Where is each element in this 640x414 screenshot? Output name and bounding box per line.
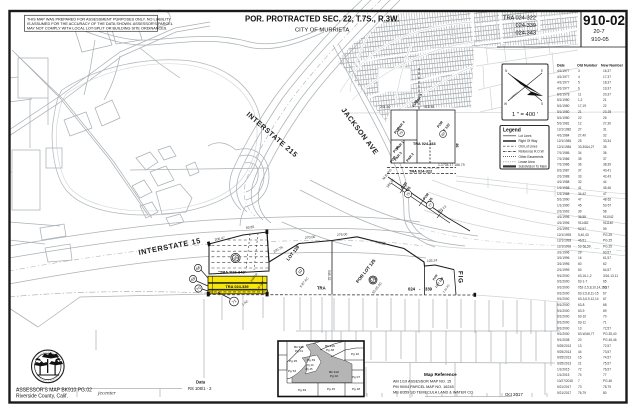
svg-text:5/1/1980: 5/1/1980	[557, 110, 570, 114]
svg-text:9/25/2013: 9/25/2013	[557, 350, 571, 354]
svg-text:61,57: 61,57	[603, 256, 611, 260]
svg-text:27: 27	[578, 128, 582, 132]
svg-text:2/1/1992: 2/1/1992	[557, 209, 570, 213]
svg-text:18,37: 18,37	[603, 81, 611, 85]
svg-text:72,57: 72,57	[603, 344, 611, 348]
svg-text:IS ASSUMED FOR THE ACCURACY OF: IS ASSUMED FOR THE ACCURACY OF THE DATA …	[27, 22, 173, 26]
svg-text:241.50: 241.50	[380, 105, 390, 109]
svg-text:33,30&4,27: 33,30&4,27	[578, 145, 595, 149]
svg-text:36: 36	[603, 151, 607, 155]
svg-text:Map Reference: Map Reference	[424, 372, 457, 377]
svg-text:45: 45	[578, 204, 582, 208]
svg-text:73: 73	[578, 385, 582, 389]
svg-text:33: 33	[578, 174, 582, 178]
svg-text:Lot Lines: Lot Lines	[519, 134, 532, 138]
svg-text:46,51: 46,51	[578, 239, 586, 243]
svg-text:46: 46	[455, 143, 460, 148]
svg-text:1/1/1988: 1/1/1988	[557, 192, 570, 196]
svg-text:5/1/1980: 5/1/1980	[557, 98, 570, 102]
svg-text:19,37: 19,37	[603, 87, 611, 91]
svg-text:45,46: 45,46	[603, 186, 611, 190]
svg-text:20: 20	[578, 338, 582, 342]
svg-text:21: 21	[578, 362, 582, 366]
svg-text:Pg 25: Pg 25	[289, 359, 297, 363]
svg-text:339: 339	[425, 287, 433, 292]
svg-text:4/1/1996: 4/1/1996	[557, 221, 570, 225]
svg-text:Data: Data	[196, 380, 206, 385]
svg-text:71: 71	[603, 321, 607, 325]
svg-text:60: 60	[578, 262, 582, 266]
svg-text:21: 21	[603, 98, 607, 102]
svg-text:52,57: 52,57	[578, 227, 586, 231]
svg-text:42,43: 42,43	[603, 174, 611, 178]
svg-text:Lease Area: Lease Area	[519, 160, 535, 164]
svg-text:4/1/1996: 4/1/1996	[557, 215, 570, 219]
svg-text:78,79: 78,79	[603, 385, 611, 389]
svg-text:911042: 911042	[603, 215, 614, 219]
svg-text:17,37: 17,37	[603, 75, 611, 79]
svg-text:5/1/1990: 5/1/1990	[557, 198, 570, 202]
svg-text:34,42: 34,42	[578, 192, 586, 196]
svg-text:9/1/2000: 9/1/2000	[557, 321, 570, 325]
svg-text:9/21/2017: 9/21/2017	[557, 391, 571, 395]
svg-text:53-56,59: 53-56,59	[578, 245, 591, 249]
svg-text:Pg 38: Pg 38	[326, 348, 334, 352]
svg-text:26: 26	[603, 116, 607, 120]
svg-text:63-8: 63-8	[578, 303, 585, 307]
svg-text:911482: 911482	[578, 221, 589, 225]
svg-text:47: 47	[603, 192, 607, 196]
svg-text:36,58: 36,58	[578, 215, 586, 219]
svg-text:27,30: 27,30	[603, 122, 611, 126]
svg-text:66: 66	[603, 285, 607, 289]
svg-text:9/1/2000: 9/1/2000	[557, 309, 570, 313]
svg-text:12/1/1984: 12/1/1984	[557, 139, 571, 143]
svg-text:024: 024	[408, 287, 416, 292]
svg-text:105.24: 105.24	[427, 258, 438, 263]
svg-text:024-339: 024-339	[515, 23, 536, 29]
svg-text:33,34: 33,34	[603, 139, 611, 143]
svg-text:10/27/2015: 10/27/2015	[557, 379, 573, 383]
svg-text:11: 11	[578, 92, 582, 96]
svg-text:E: E	[541, 69, 543, 73]
svg-text:9/25/2013: 9/25/2013	[557, 344, 571, 348]
svg-text:4/1/1977: 4/1/1977	[557, 75, 570, 79]
svg-text:2/1/1991: 2/1/1991	[557, 227, 570, 231]
svg-text:59: 59	[603, 227, 607, 231]
svg-text:3/1/1996: 3/1/1996	[557, 256, 570, 260]
svg-text:9/1/2000: 9/1/2000	[557, 315, 570, 319]
svg-text:32: 32	[603, 133, 607, 137]
svg-text:65: 65	[603, 280, 607, 284]
svg-text:9/25/2013: 9/25/2013	[557, 362, 571, 366]
svg-text:TRA 024-343: TRA 024-343	[413, 142, 436, 146]
svg-text:7/1/1986: 7/1/1986	[557, 157, 570, 161]
svg-text:63-1-7: 63-1-7	[578, 280, 587, 284]
svg-text:37: 37	[578, 168, 582, 172]
svg-text:48-52: 48-52	[603, 198, 611, 202]
svg-text:63-3,6,9,12,14: 63-3,6,9,12,14	[578, 297, 599, 301]
svg-text:3/1/1996: 3/1/1996	[557, 250, 570, 254]
svg-text:21: 21	[578, 110, 582, 114]
svg-text:17,19: 17,19	[578, 104, 586, 108]
svg-text:Pg 40: Pg 40	[307, 363, 314, 367]
svg-text:40,41: 40,41	[603, 168, 611, 172]
svg-text:35: 35	[603, 145, 607, 149]
svg-text:1/1/1990: 1/1/1990	[557, 204, 570, 208]
svg-text:74,57: 74,57	[603, 356, 611, 360]
svg-text:63-10: 63-10	[578, 315, 586, 319]
svg-text:Subdivision To Mark: Subdivision To Mark	[519, 165, 548, 169]
svg-text:TRA: TRA	[317, 286, 326, 291]
svg-text:1,2: 1,2	[578, 98, 583, 102]
svg-text:Old Lot Lines: Old Lot Lines	[519, 144, 538, 148]
svg-text:5: 5	[578, 81, 580, 85]
svg-text:70: 70	[603, 315, 607, 319]
svg-text:80: 80	[603, 391, 607, 395]
svg-text:PG.25: PG.25	[603, 239, 612, 243]
svg-text:Old Number: Old Number	[577, 64, 598, 68]
svg-text:PG.25: PG.25	[603, 233, 612, 237]
svg-text:Pg 45: Pg 45	[306, 367, 313, 371]
svg-text:Oct 2017: Oct 2017	[505, 392, 523, 397]
svg-text:910-02: 910-02	[583, 13, 625, 28]
svg-text:2/1/1999: 2/1/1999	[557, 268, 570, 272]
svg-text:12/1/1993: 12/1/1993	[557, 239, 571, 243]
svg-text:PG.25: PG.25	[603, 245, 612, 249]
svg-text:9/1/2000: 9/1/2000	[557, 291, 570, 295]
svg-text:44: 44	[603, 180, 607, 184]
svg-text:6/1/1987: 6/1/1987	[557, 168, 570, 172]
svg-text:12/1/1993: 12/1/1993	[557, 245, 571, 249]
svg-text:5,40,43: 5,40,43	[578, 233, 589, 237]
svg-text:63,16-1,2: 63,16-1,2	[578, 274, 592, 278]
svg-text:Reference R.O.W.: Reference R.O.W.	[519, 150, 545, 154]
svg-text:MAY NOT COMPLY WITH LOCAL LOT-: MAY NOT COMPLY WITH LOCAL LOT-SPLIT OR B…	[27, 26, 167, 30]
svg-text:PG.35,40: PG.35,40	[603, 332, 617, 336]
svg-text:5/1/1980: 5/1/1980	[557, 104, 570, 108]
svg-text:76,79: 76,79	[578, 391, 586, 395]
svg-text:Other Easements: Other Easements	[519, 155, 544, 159]
svg-text:3/16-13,11: 3/16-13,11	[603, 274, 618, 278]
svg-text:9/1/2000: 9/1/2000	[557, 274, 570, 278]
svg-text:9/1/2000: 9/1/2000	[557, 297, 570, 301]
svg-text:Riverside County, Calif.: Riverside County, Calif.	[16, 394, 68, 400]
svg-text:13: 13	[578, 326, 582, 330]
svg-text:TRA 024-322: TRA 024-322	[503, 16, 536, 22]
svg-text:1 " = 400 ': 1 " = 400 '	[512, 112, 538, 118]
svg-text:60,57: 60,57	[603, 250, 611, 254]
svg-text:47: 47	[578, 198, 582, 202]
svg-text:4/1/1977: 4/1/1977	[557, 69, 570, 73]
svg-text:72,57: 72,57	[603, 326, 611, 330]
svg-text:9/21/2017: 9/21/2017	[557, 385, 571, 389]
svg-text:63-2,5,8,11-15: 63-2,5,8,11-15	[578, 291, 599, 295]
svg-text:Pg 39: Pg 39	[307, 358, 315, 362]
svg-text:Right Of Way: Right Of Way	[519, 139, 538, 143]
svg-text:2/1/1988: 2/1/1988	[557, 174, 570, 178]
svg-text:4: 4	[578, 75, 580, 79]
svg-text:74: 74	[578, 373, 582, 377]
svg-text:22: 22	[603, 104, 607, 108]
svg-text:12/1/1982: 12/1/1982	[557, 128, 571, 132]
svg-text:"TRA '026-343': "TRA '026-343'	[218, 270, 246, 275]
svg-text:RS 108/1 - 2: RS 108/1 - 2	[188, 386, 212, 391]
svg-text:545.32: 545.32	[327, 270, 331, 280]
svg-text:4/1/1984: 4/1/1984	[557, 133, 570, 137]
svg-text:1/1/2015: 1/1/2015	[557, 373, 570, 377]
svg-text:36: 36	[578, 163, 582, 167]
svg-text:75,57: 75,57	[603, 362, 611, 366]
svg-text:76,57: 76,57	[603, 367, 611, 371]
svg-text:Pg 15: Pg 15	[327, 387, 335, 391]
svg-text:418.55: 418.55	[424, 105, 434, 109]
svg-text:8/1/1978: 8/1/1978	[557, 92, 570, 96]
svg-text:911140: 911140	[603, 221, 613, 225]
svg-text:72: 72	[578, 367, 582, 371]
svg-text:41: 41	[578, 186, 582, 190]
svg-text:PG.45,46: PG.45,46	[603, 338, 617, 342]
svg-text:35: 35	[578, 157, 582, 161]
svg-text:6: 6	[578, 87, 580, 91]
svg-text:63-W,66,77: 63-W,66,77	[578, 332, 595, 336]
svg-text:S: S	[541, 102, 543, 106]
svg-text:15: 15	[578, 356, 582, 360]
svg-text:69: 69	[603, 309, 607, 313]
svg-text:29: 29	[578, 250, 582, 254]
svg-text:53-57: 53-57	[603, 204, 611, 208]
svg-text:68: 68	[603, 303, 607, 307]
svg-text:77: 77	[603, 373, 607, 377]
svg-text:New Number: New Number	[601, 64, 624, 68]
svg-text:63-11: 63-11	[578, 321, 586, 325]
svg-text:64,57: 64,57	[603, 268, 611, 272]
svg-text:27,40: 27,40	[578, 133, 586, 137]
svg-text:16,37: 16,37	[603, 69, 611, 73]
svg-text:4/1/1977: 4/1/1977	[557, 81, 570, 85]
svg-text:9/1/2000: 9/1/2000	[557, 285, 570, 289]
svg-text:62: 62	[603, 262, 607, 266]
svg-text:7/1/1986: 7/1/1986	[557, 163, 570, 167]
svg-text:44: 44	[578, 350, 582, 354]
svg-text:60: 60	[578, 268, 582, 272]
svg-text:16: 16	[578, 256, 582, 260]
svg-text:67: 67	[603, 297, 607, 301]
svg-text:W: W	[504, 102, 507, 106]
svg-text:9/25/2013: 9/25/2013	[557, 356, 571, 360]
svg-text:9/1/2000: 9/1/2000	[557, 280, 570, 284]
svg-text:Pg 49: Pg 49	[298, 388, 306, 392]
svg-text:7/1/1986: 7/1/1986	[557, 151, 570, 155]
svg-text:12/1/1993: 12/1/1993	[557, 233, 571, 237]
svg-text:Pg 10: Pg 10	[351, 352, 359, 356]
svg-text:9/1/2000: 9/1/2000	[557, 332, 570, 336]
svg-text:20,37: 20,37	[603, 92, 611, 96]
svg-text:73,57: 73,57	[603, 350, 611, 354]
svg-text:20-7: 20-7	[593, 29, 604, 35]
svg-text:38,39: 38,39	[603, 163, 611, 167]
svg-text:58: 58	[603, 209, 607, 213]
svg-text:PG.46: PG.46	[603, 379, 612, 383]
svg-text:1/1/2015: 1/1/2015	[557, 367, 570, 371]
svg-text:9/1/2000: 9/1/2000	[557, 303, 570, 307]
svg-text:Pg 02: Pg 02	[330, 374, 338, 378]
svg-text:276.00: 276.00	[337, 232, 348, 237]
svg-text:Date: Date	[557, 64, 565, 68]
svg-text:12/1/1984: 12/1/1984	[557, 145, 571, 149]
svg-text:67: 67	[603, 291, 607, 295]
svg-text:POR. PROTRACTED SEC. 22, T.7S.: POR. PROTRACTED SEC. 22, T.7S., R.3W.	[245, 15, 399, 24]
svg-text:1-1734.17 186.79: 1-1734.17 186.79	[438, 163, 465, 167]
svg-text:5/1/1981: 5/1/1981	[557, 122, 570, 126]
svg-text:5/1/1980: 5/1/1980	[557, 116, 570, 120]
svg-text:024-343: 024-343	[515, 31, 536, 37]
svg-text:CITY OF MURRIETA: CITY OF MURRIETA	[295, 28, 349, 34]
svg-text:Pg 53: Pg 53	[288, 369, 296, 373]
svg-text:63-9: 63-9	[578, 309, 585, 313]
svg-text:3/1/1996: 3/1/1996	[557, 262, 570, 266]
svg-text:9/1/2000: 9/1/2000	[557, 326, 570, 330]
svg-text:910-05: 910-05	[591, 37, 608, 43]
svg-text:Pg 07: Pg 07	[352, 375, 360, 379]
svg-text:31: 31	[603, 128, 607, 132]
svg-text:37: 37	[603, 157, 607, 161]
svg-text:1/1/1988: 1/1/1988	[557, 186, 570, 190]
svg-text:34: 34	[578, 151, 582, 155]
svg-text:MB 8/359 SD TEMECULA LAND: MB 8/359 SD TEMECULA LAND & WATER CO.	[393, 391, 474, 395]
svg-text:FIG: FIG	[457, 271, 464, 284]
svg-text:TRA 024-339: TRA 024-339	[225, 284, 249, 289]
svg-text:4/1/1977: 4/1/1977	[557, 87, 570, 91]
svg-text:22: 22	[578, 116, 582, 120]
svg-text:9/1/2008: 9/1/2008	[557, 338, 570, 342]
svg-text:7: 7	[578, 379, 580, 383]
svg-text:3: 3	[578, 69, 580, 73]
svg-text:Pg 18: Pg 18	[352, 387, 360, 391]
svg-text:Pg 01: Pg 01	[295, 349, 303, 353]
svg-text:39: 39	[578, 209, 582, 213]
svg-text:PM 90/04 PARCEL MAP NO. 162: PM 90/04 PARCEL MAP NO. 16245	[393, 385, 454, 389]
svg-text:25: 25	[578, 139, 582, 143]
svg-text:Legend: Legend	[503, 128, 521, 134]
svg-text:12: 12	[578, 122, 582, 126]
svg-text:23-25: 23-25	[603, 110, 611, 114]
svg-text:13: 13	[578, 344, 582, 348]
svg-text:TRA 024-322: TRA 024-322	[409, 169, 433, 174]
svg-text:32: 32	[578, 180, 582, 184]
svg-text:4/1/1988: 4/1/1988	[557, 180, 570, 184]
svg-text:jecenter: jecenter	[97, 391, 117, 397]
svg-text:AM 1/19 ASSESSOR MAP NO. 1: AM 1/19 ASSESSOR MAP NO. 15	[393, 380, 451, 384]
svg-text:THIS MAP WAS PREPARED FOR ASSE: THIS MAP WAS PREPARED FOR ASSESSMENT PUR…	[27, 17, 171, 21]
